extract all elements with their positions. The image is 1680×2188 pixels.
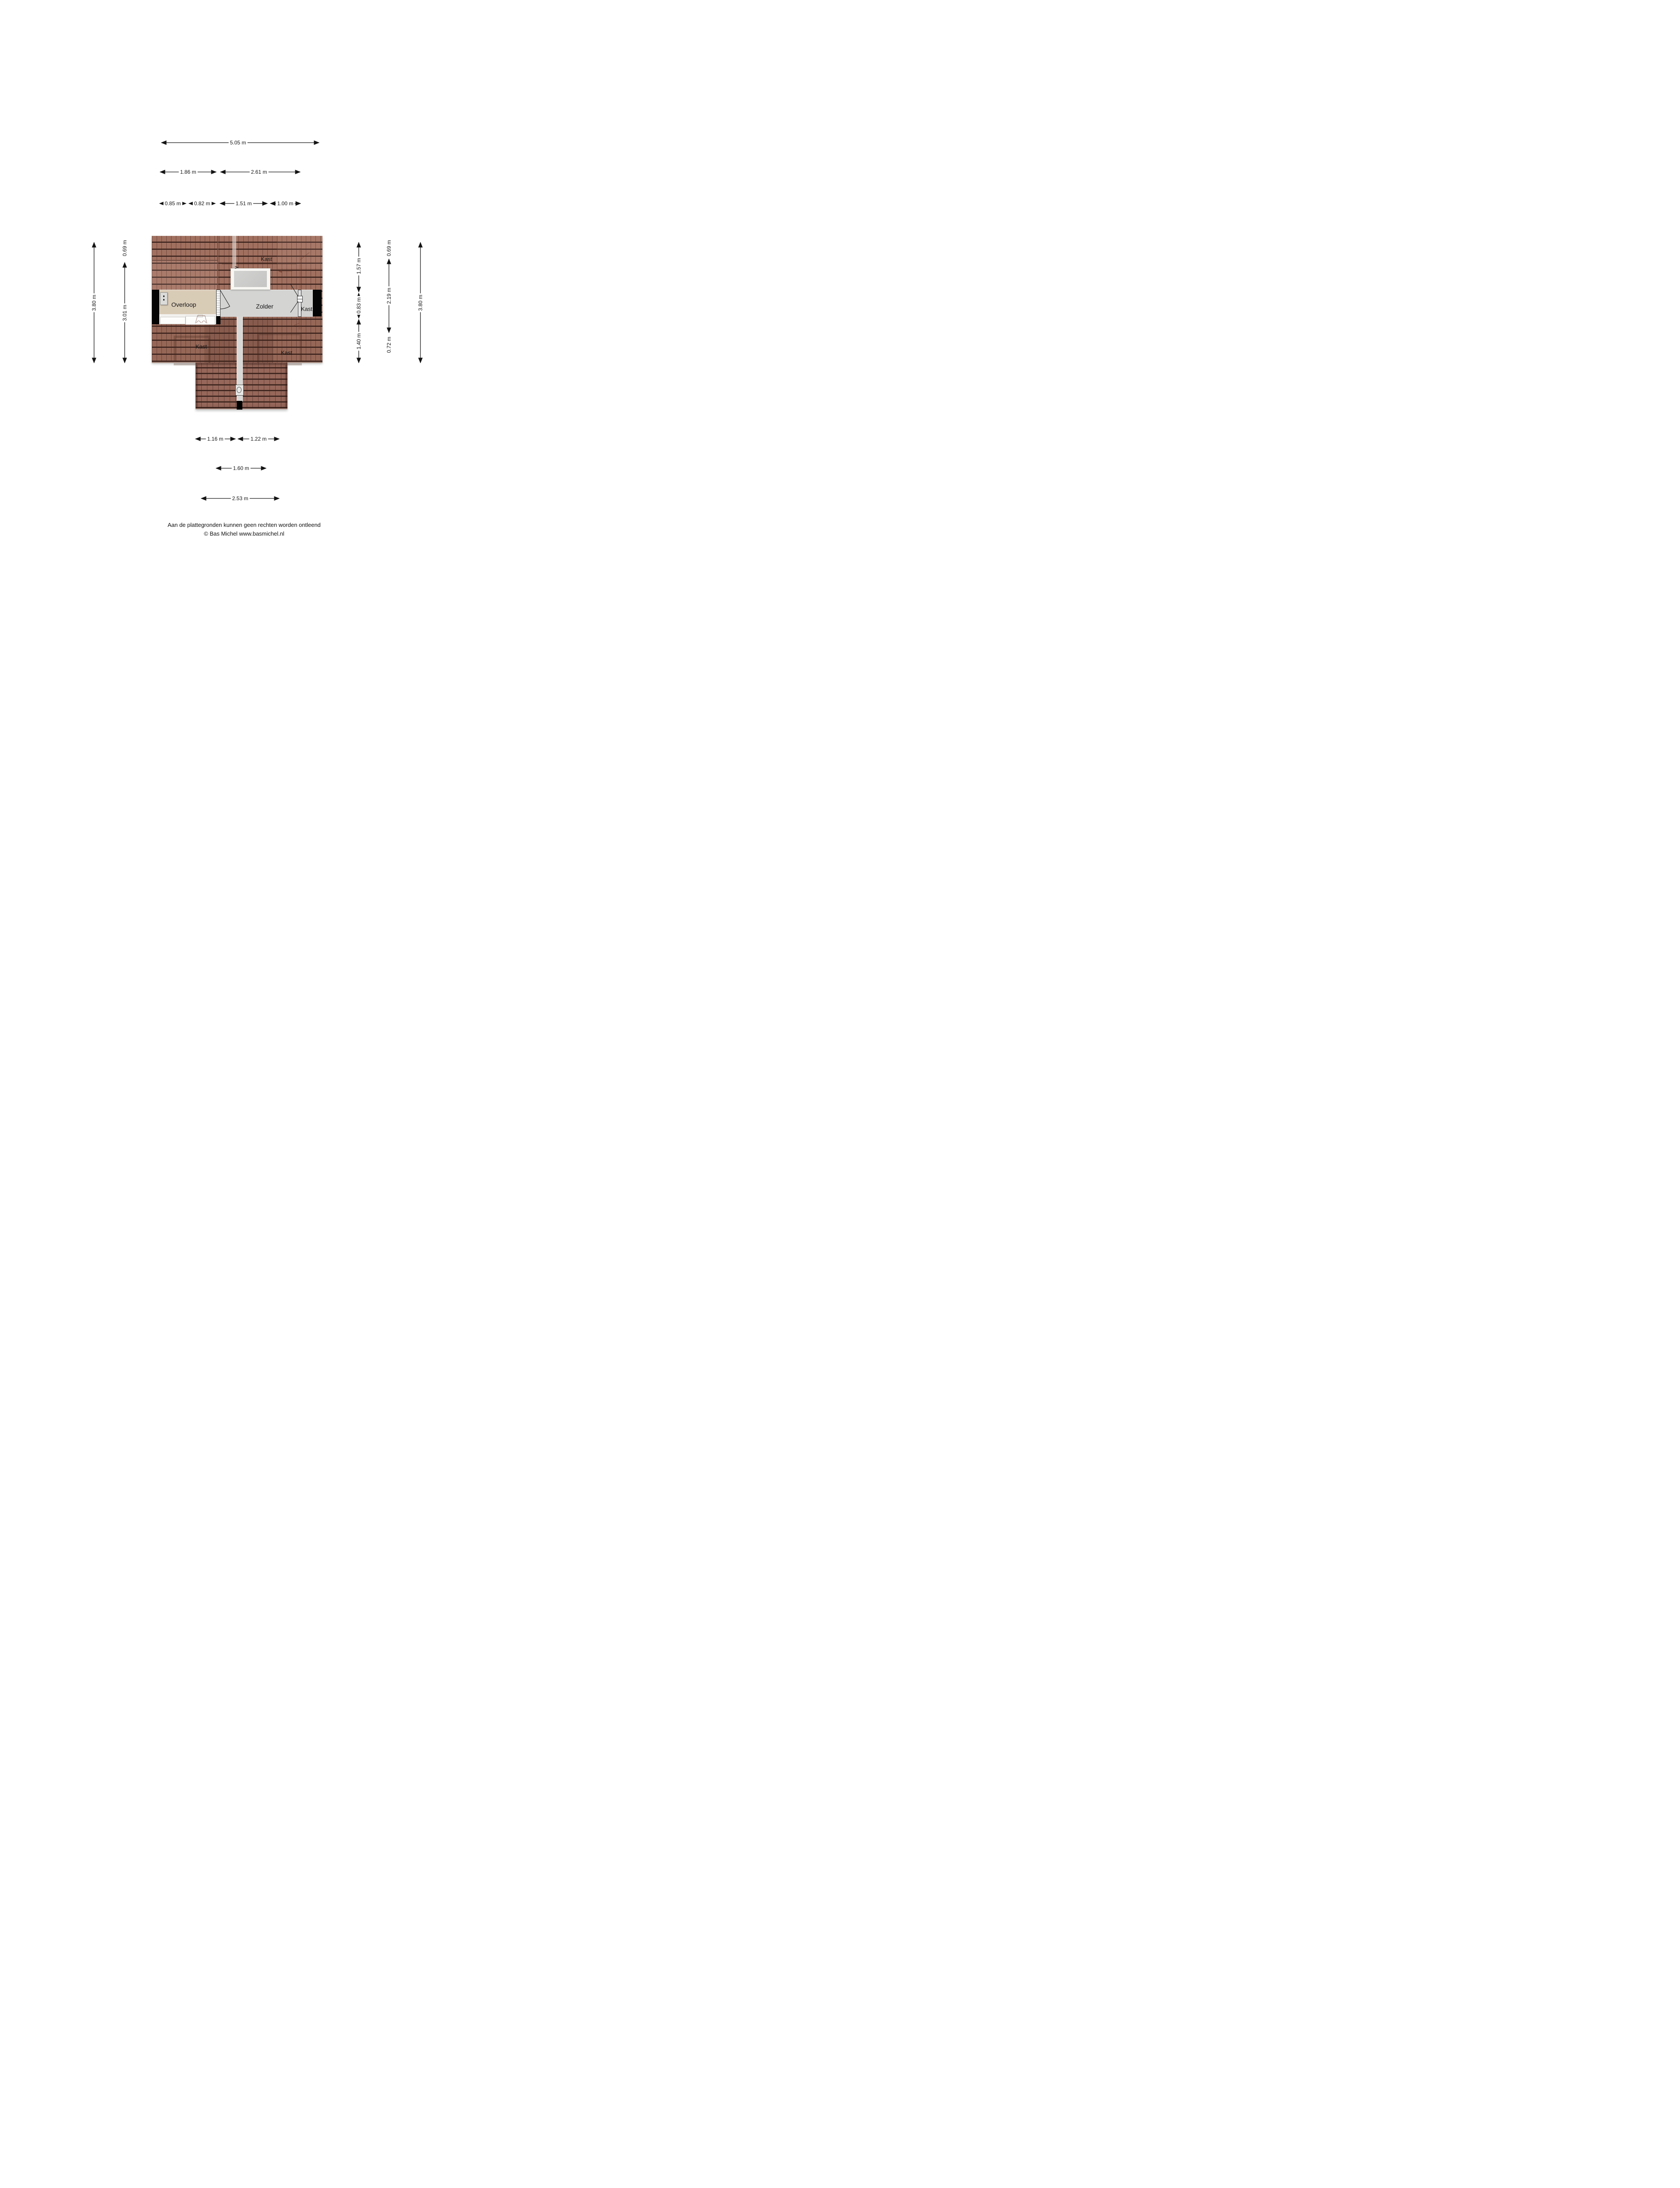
roof-shade-flank-right: [242, 319, 273, 363]
roof-ridge-line: [152, 260, 218, 261]
dimension-label: 2.61 m: [250, 169, 269, 175]
roof-shade-upper-left: [152, 261, 218, 290]
closet-ghost-outline: [174, 336, 210, 365]
door-handle-block: [297, 299, 303, 302]
disclaimer-text: Aan de plattegronden kunnen geen rechten…: [168, 522, 321, 528]
roof-valley-line: [217, 236, 218, 290]
dimension-label: 1.16 m: [206, 436, 225, 442]
flue-outlet-icon: [235, 385, 244, 396]
dimension-label: 3.01 m: [122, 304, 128, 323]
dimension-label: 0.83 m: [356, 296, 362, 315]
roof-edge-bevel: [287, 362, 322, 363]
skylight-glass: [234, 271, 267, 287]
dimension-label: 1.22 m: [249, 436, 268, 442]
dimension-label: 0.85 m: [164, 200, 182, 207]
roof-shade-flank-left: [206, 319, 235, 363]
copyright-text: © Bas Michel www.basmichel.nl: [204, 530, 284, 537]
room-label-kast-right: Kast: [301, 306, 312, 312]
wall-left: [152, 290, 159, 324]
dormer-window-right: [185, 316, 215, 325]
floor-kast-right: [301, 290, 313, 317]
room-label-overloop: Overloop: [171, 301, 196, 308]
dimension-label: 2.53 m: [231, 495, 250, 501]
dimension-label: 2.19 m: [386, 287, 392, 305]
window-handle-notch: [198, 315, 203, 317]
dimension-label: 0.82 m: [193, 200, 212, 207]
door-overloop-zolder: [216, 290, 220, 316]
wall-right: [313, 290, 322, 316]
dimension-label: 0.69 m: [122, 239, 128, 258]
room-label-kast-bottom-left: Kast: [196, 344, 207, 350]
roof-shade-upper-right: [277, 236, 322, 268]
dimension-label: 0.69 m: [386, 239, 392, 258]
room-label-kast-bottom-right: Kast: [281, 350, 292, 356]
chimney-block: [237, 401, 242, 410]
roof-ghost-wall-line: [222, 264, 297, 264]
dimension-label: 1.57 m: [356, 257, 362, 276]
dimension-label: 0.72 m: [386, 336, 392, 354]
dimension-label: 3.80 m: [91, 294, 97, 312]
dimension-label: 1.86 m: [179, 169, 198, 175]
door-zolder-kast: [298, 290, 301, 317]
dimension-label: 1.00 m: [276, 200, 295, 207]
roof-edge-bevel: [152, 362, 196, 363]
ventilation-unit-icon: [160, 292, 168, 305]
roof-seam-strip: [232, 236, 236, 268]
dimension-label: 5.05 m: [229, 140, 248, 146]
wall-door-stub: [216, 316, 220, 324]
floorplan-page: 5.05 m 1.86 m 2.61 m 0.85 m 0.82 m 1.51 …: [0, 0, 504, 672]
dimension-label: 1.60 m: [232, 465, 251, 471]
dimension-label: 1.51 m: [234, 200, 253, 207]
dimension-label: 3.80 m: [417, 294, 423, 312]
skylight-window: [231, 268, 270, 290]
room-label-zolder: Zolder: [256, 303, 273, 310]
room-label-kast-top: Kast: [261, 256, 272, 263]
roof-joint-line: [277, 236, 277, 268]
dormer-window-left: [160, 317, 185, 324]
dimension-label: 1.40 m: [356, 332, 362, 351]
closet-ghost-outline: [257, 333, 302, 365]
